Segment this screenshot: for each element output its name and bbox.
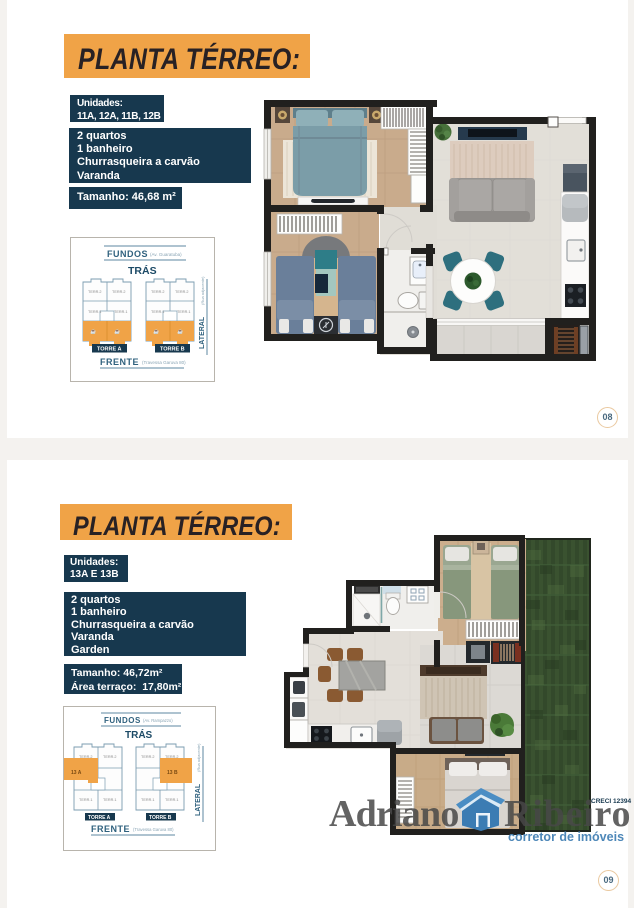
svg-text:TERR.1: TERR.1	[141, 798, 155, 802]
svg-text:TERR.1: TERR.1	[114, 310, 128, 314]
svg-text:TERR.2: TERR.2	[88, 290, 102, 294]
svg-text:(Av. Guaratuba): (Av. Guaratuba)	[150, 252, 182, 257]
svg-text:LATERAL: LATERAL	[195, 783, 202, 816]
svg-text:LATERAL: LATERAL	[199, 316, 206, 349]
svg-text:13 B: 13 B	[167, 770, 178, 776]
svg-text:☕: ☕	[153, 328, 159, 335]
svg-text:TRÁS: TRÁS	[125, 728, 153, 741]
svg-text:TORRE A: TORRE A	[88, 815, 111, 821]
svg-text:(Travessa Garuva 80): (Travessa Garuva 80)	[142, 360, 186, 365]
svg-text:☕: ☕	[177, 328, 183, 335]
svg-text:TERR.2: TERR.2	[151, 290, 165, 294]
svg-text:TERR.2: TERR.2	[175, 290, 189, 294]
svg-text:TERR.1: TERR.1	[103, 798, 117, 802]
svg-text:13 A: 13 A	[71, 770, 82, 776]
svg-text:(Rua adjacente): (Rua adjacente)	[196, 743, 201, 772]
svg-text:TORRE B: TORRE B	[160, 347, 185, 353]
svg-text:TRÁS: TRÁS	[128, 264, 157, 277]
svg-text:TERR.2: TERR.2	[103, 755, 117, 759]
svg-text:☕: ☕	[114, 328, 120, 335]
svg-text:TORRE B: TORRE B	[149, 815, 172, 821]
svg-text:FRENTE: FRENTE	[100, 357, 139, 367]
svg-text:TERR.2: TERR.2	[112, 290, 126, 294]
svg-text:FRENTE: FRENTE	[91, 824, 130, 834]
svg-text:TERR.1: TERR.1	[79, 798, 93, 802]
svg-text:TERR.1: TERR.1	[88, 310, 102, 314]
svg-text:TERR.1: TERR.1	[177, 310, 191, 314]
svg-text:FUNDOS: FUNDOS	[107, 249, 148, 259]
svg-text:FUNDOS: FUNDOS	[104, 716, 141, 725]
svg-text:(Av. Rampazzo): (Av. Rampazzo)	[143, 718, 173, 723]
svg-text:TORRE A: TORRE A	[97, 347, 121, 353]
svg-text:TERR.1: TERR.1	[165, 798, 179, 802]
svg-text:☕: ☕	[90, 328, 96, 335]
svg-text:TERR.1: TERR.1	[151, 310, 165, 314]
svg-text:TERR.2: TERR.2	[141, 755, 155, 759]
svg-text:(Travessa Garuva 80): (Travessa Garuva 80)	[133, 827, 174, 832]
svg-text:(Rua adjacente): (Rua adjacente)	[200, 276, 205, 305]
